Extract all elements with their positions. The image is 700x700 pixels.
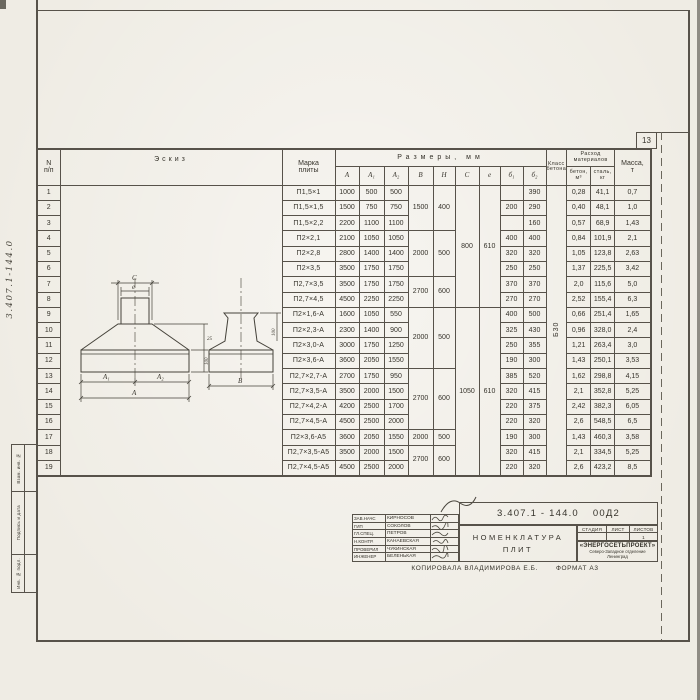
sheet-number: 13: [642, 136, 651, 145]
header-col-b1: б₁: [500, 166, 523, 185]
cell-B: 2700: [408, 445, 433, 476]
mark-cell: П2,7×2,7-А: [282, 369, 335, 384]
cell-steel: 41,1: [591, 185, 615, 200]
cell-A2: 1050: [384, 231, 408, 246]
cell-mass: 6,3: [615, 292, 651, 307]
cell-A1: 1050: [359, 307, 384, 322]
mark-cell: П2×1,6-А: [282, 307, 335, 322]
stage-header: Стадия: [578, 526, 607, 532]
stamp-label: Взам. инв. №: [16, 453, 21, 484]
row-number-cell: 7: [37, 277, 60, 292]
cell-A1: 1100: [359, 216, 384, 231]
scan-artifact: [0, 0, 6, 9]
cell-b2: 320: [523, 414, 546, 429]
cell-e: 610: [479, 307, 500, 475]
sketch-cell: С е 25 100 А₁ А₂: [60, 185, 282, 476]
cell-steel: 298,8: [591, 369, 615, 384]
cell-A2: 1500: [384, 445, 408, 460]
stamp-vzam-inv: Взам. инв. №: [11, 444, 37, 492]
signature: [431, 523, 458, 530]
header-col-e: е: [479, 166, 500, 185]
cell-b2: 430: [523, 323, 546, 338]
cell-b1: 320: [500, 246, 523, 261]
table-body: 1 С е 25 100: [37, 185, 651, 476]
cell-mass: 2,1: [615, 231, 651, 246]
cell-mass: 2,63: [615, 246, 651, 261]
cell-A2: 1550: [384, 430, 408, 445]
cell-A2: 1550: [384, 353, 408, 368]
cell-b1: 325: [500, 323, 523, 338]
signature: [431, 515, 458, 522]
sheets-value: 1: [630, 533, 657, 541]
cell-B: 2000: [408, 231, 433, 277]
cell-A1: 1050: [359, 231, 384, 246]
stamp-label: Инв. № подл.: [16, 558, 21, 589]
mark-cell: П2,7×4,5: [282, 292, 335, 307]
cell-b2: 400: [523, 231, 546, 246]
cell-steel: 250,1: [591, 353, 615, 368]
header-mass: Масса, т: [615, 149, 651, 185]
cell-b1: 250: [500, 338, 523, 353]
cell-b2: 390: [523, 185, 546, 200]
cell-C: 800: [455, 185, 479, 307]
header-col-steel: сталь, кг: [591, 166, 615, 185]
cell-H: 400: [433, 185, 455, 231]
cell-A: 2100: [335, 231, 359, 246]
plate-section-sketch: С е 25 100 А₁ А₂: [61, 186, 282, 475]
cell-b2: 520: [523, 369, 546, 384]
header-col-H: Н: [433, 166, 455, 185]
cell-A: 4200: [335, 399, 359, 414]
margin-doc-code: 3.407.1-144.0: [5, 227, 19, 331]
signature: [431, 530, 458, 537]
doc-number: 3.407.1 - 144.0: [497, 508, 579, 519]
cell-B: 1500: [408, 185, 433, 231]
cell-steel: 352,8: [591, 384, 615, 399]
cell-A2: 1750: [384, 277, 408, 292]
cell-b2: 320: [523, 246, 546, 261]
row-number-cell: 17: [37, 430, 60, 445]
row-number-cell: 18: [37, 445, 60, 460]
mark-cell: П2,7×4,5-А: [282, 414, 335, 429]
staff-row: Зав.НАЧС Кирносов: [353, 515, 458, 523]
header-col-b2: б₂: [523, 166, 546, 185]
staff-row: Инженер Беленькая: [353, 553, 458, 561]
row-number-cell: 14: [37, 384, 60, 399]
cell-A: 3500: [335, 277, 359, 292]
cell-A: 3600: [335, 353, 359, 368]
header-mark: Марка плиты: [282, 149, 335, 185]
cell-H: 500: [433, 307, 455, 368]
header-materials-group: Расход материалов: [567, 149, 615, 166]
header-sketch: Эскиз: [60, 149, 282, 185]
cell-concrete: 2,1: [567, 384, 591, 399]
cell-concrete: 0,57: [567, 216, 591, 231]
cell-A1: 2250: [359, 292, 384, 307]
cell-steel: 48,1: [591, 200, 615, 215]
cell-b1: 190: [500, 353, 523, 368]
cell-A1: 2050: [359, 353, 384, 368]
cell-A2: 2250: [384, 292, 408, 307]
cell-A: 2200: [335, 216, 359, 231]
cell-concrete: 2,52: [567, 292, 591, 307]
cell-A1: 2000: [359, 384, 384, 399]
row-number-cell: 19: [37, 460, 60, 475]
mark-cell: П2,7×4,2-А: [282, 399, 335, 414]
stamp-blank: [25, 492, 36, 554]
cell-steel: 101,9: [591, 231, 615, 246]
table-header: N п/п Эскиз Марка плиты Размеры, мм Клас…: [37, 149, 651, 185]
header-col-A1: А₁: [359, 166, 384, 185]
cell-H: 600: [433, 277, 455, 308]
header-col-B: В: [408, 166, 433, 185]
cell-concrete: 1,21: [567, 338, 591, 353]
sheets-header: Листов: [630, 526, 657, 532]
frame-top: [36, 10, 689, 11]
cell-b1: 385: [500, 369, 523, 384]
frame-right: [688, 10, 690, 641]
stamp-blank: [25, 555, 36, 592]
cell-concrete: 2,6: [567, 460, 591, 475]
mark-cell: П2,7×3,5: [282, 277, 335, 292]
cell-b1: 220: [500, 414, 523, 429]
copy-note: Копировала Владимирова Е.Б. Формат А3: [352, 565, 658, 572]
cell-mass: 5,0: [615, 277, 651, 292]
cell-mass: 4,15: [615, 369, 651, 384]
sheet-number-box: 13: [636, 132, 657, 149]
cell-H: 500: [433, 231, 455, 277]
cell-steel: 225,5: [591, 261, 615, 276]
cell-b2: 415: [523, 384, 546, 399]
mark-cell: П1,5×2,2: [282, 216, 335, 231]
cell-mass: 6,05: [615, 399, 651, 414]
stamp-label: Подпись и дата: [16, 505, 21, 540]
cell-e: 610: [479, 185, 500, 307]
mark-cell: П2×3,0-А: [282, 338, 335, 353]
mark-cell: П2×3,6-А5: [282, 430, 335, 445]
cell-concrete: 1,62: [567, 369, 591, 384]
cell-A: 1500: [335, 200, 359, 215]
mark-cell: П2×3,6-А: [282, 353, 335, 368]
staff-row: Гл.спец. Петров: [353, 530, 458, 538]
row-number-cell: 10: [37, 323, 60, 338]
table-row: 1 С е 25 100: [37, 185, 651, 200]
doc-number-box: 3.407.1 - 144.0 00Д2: [459, 502, 658, 525]
cell-A1: 2500: [359, 399, 384, 414]
cell-A: 3500: [335, 261, 359, 276]
cell-A1: 1750: [359, 338, 384, 353]
mark-cell: П1,5×1: [282, 185, 335, 200]
cell-b2: 375: [523, 399, 546, 414]
drawing-sheet: 13 3.407.1-144.0 Взам. инв. № Подпись и …: [0, 0, 700, 700]
cell-A: 3000: [335, 338, 359, 353]
cell-A2: 1400: [384, 246, 408, 261]
header-col-concrete: бетон, м³: [567, 166, 591, 185]
cell-A2: 950: [384, 369, 408, 384]
signature: [431, 538, 458, 545]
row-number-cell: 2: [37, 200, 60, 215]
cell-b1: 320: [500, 384, 523, 399]
cell-A: 3500: [335, 445, 359, 460]
cell-A: 1000: [335, 185, 359, 200]
cell-A2: 2000: [384, 414, 408, 429]
cell-b1: 200: [500, 200, 523, 215]
cell-A1: 500: [359, 185, 384, 200]
cell-A2: 900: [384, 323, 408, 338]
cell-b1: 220: [500, 399, 523, 414]
cell-A2: 1500: [384, 384, 408, 399]
cell-A: 3500: [335, 384, 359, 399]
row-number-cell: 16: [37, 414, 60, 429]
cell-b1: 270: [500, 292, 523, 307]
cell-A1: 2050: [359, 430, 384, 445]
signature: [431, 553, 458, 561]
cell-b1: 400: [500, 307, 523, 322]
cell-concrete: 2,6: [567, 414, 591, 429]
cell-b1: 400: [500, 231, 523, 246]
concrete-class-cell: Б30: [546, 185, 567, 476]
cell-mass: 3,42: [615, 261, 651, 276]
cell-concrete: 1,43: [567, 430, 591, 445]
mark-cell: П2,7×4,5-А5: [282, 460, 335, 475]
cell-A: 3600: [335, 430, 359, 445]
header-sizes-group: Размеры, мм: [335, 149, 546, 166]
header-concrete-class: Класс бетона: [546, 149, 567, 185]
cell-H: 600: [433, 445, 455, 476]
cell-b2: 300: [523, 353, 546, 368]
cell-A1: 1750: [359, 369, 384, 384]
cell-concrete: 1,43: [567, 353, 591, 368]
title-block: 3.407.1 - 144.0 00Д2 Зав.НАЧС Кирносов Г…: [352, 502, 658, 562]
sketch-label-a1: А₁: [102, 373, 110, 381]
cell-A1: 2500: [359, 414, 384, 429]
cell-A1: 750: [359, 200, 384, 215]
cell-A: 4500: [335, 460, 359, 475]
cell-concrete: 1,05: [567, 246, 591, 261]
cell-B: 2000: [408, 307, 433, 368]
mark-cell: П2,7×3,5-А5: [282, 445, 335, 460]
cell-mass: 5,25: [615, 445, 651, 460]
doc-suffix: 00Д2: [593, 508, 620, 519]
staff-row: ГИП Соколов: [353, 523, 458, 531]
cell-b1: [500, 216, 523, 231]
cell-b1: [500, 185, 523, 200]
row-number-cell: 15: [37, 399, 60, 414]
cell-A2: 500: [384, 185, 408, 200]
cell-b2: 300: [523, 430, 546, 445]
sketch-label-25: 25: [207, 337, 213, 342]
cell-A2: 1700: [384, 399, 408, 414]
sketch-label-c: С: [132, 274, 137, 282]
cell-A2: 1100: [384, 216, 408, 231]
cell-mass: 3,53: [615, 353, 651, 368]
sheet-header: Лист: [607, 526, 630, 532]
cell-concrete: 0,66: [567, 307, 591, 322]
cell-A: 4500: [335, 292, 359, 307]
cell-A: 4500: [335, 414, 359, 429]
sketch-label-100-right: 100: [272, 328, 277, 336]
cell-mass: 2,4: [615, 323, 651, 338]
format-line: Формат А3: [556, 565, 599, 572]
stamp-podpis-data: Подпись и дата: [11, 492, 37, 555]
cell-b1: 190: [500, 430, 523, 445]
cell-steel: 263,4: [591, 338, 615, 353]
cell-mass: 3,58: [615, 430, 651, 445]
header-col-C: С: [455, 166, 479, 185]
stage-value: [578, 533, 607, 541]
cell-C: 1050: [455, 307, 479, 475]
cell-steel: 328,0: [591, 323, 615, 338]
cell-b1: 250: [500, 261, 523, 276]
cell-mass: 1,0: [615, 200, 651, 215]
row-number-cell: 3: [37, 216, 60, 231]
frame-bottom: [36, 640, 690, 642]
cell-b2: 370: [523, 277, 546, 292]
cell-mass: 3,0: [615, 338, 651, 353]
staff-row: Н.контр. Канаевская: [353, 538, 458, 546]
row-number-cell: 8: [37, 292, 60, 307]
cell-mass: 6,5: [615, 414, 651, 429]
row-number-cell: 6: [37, 261, 60, 276]
cell-b2: 355: [523, 338, 546, 353]
cell-b2: 270: [523, 292, 546, 307]
cell-A1: 1750: [359, 277, 384, 292]
sketch-label-a2: А₂: [156, 373, 164, 381]
fold-line: [661, 132, 662, 640]
cell-steel: 155,4: [591, 292, 615, 307]
margin-stamp-block: Взам. инв. № Подпись и дата Инв. № подл.: [11, 444, 37, 593]
cell-concrete: 0,28: [567, 185, 591, 200]
copy-line: Копировала Владимирова Е.Б.: [411, 565, 538, 572]
cell-A: 2800: [335, 246, 359, 261]
cell-A1: 1400: [359, 246, 384, 261]
cell-A1: 1750: [359, 261, 384, 276]
cell-concrete: 2,0: [567, 277, 591, 292]
row-number-cell: 11: [37, 338, 60, 353]
cell-concrete: 2,1: [567, 445, 591, 460]
cell-concrete: 0,96: [567, 323, 591, 338]
sketch-label-b: В: [238, 377, 243, 385]
row-number-cell: 12: [37, 353, 60, 368]
cell-steel: 382,3: [591, 399, 615, 414]
cell-b2: 320: [523, 460, 546, 475]
header-col-A2: А₂: [384, 166, 408, 185]
cell-B: 2700: [408, 277, 433, 308]
mark-cell: П1,5×1,5: [282, 200, 335, 215]
cell-mass: 8,5: [615, 460, 651, 475]
cell-mass: 5,25: [615, 384, 651, 399]
cell-b1: 370: [500, 277, 523, 292]
cell-A1: 2000: [359, 445, 384, 460]
cell-A2: 2000: [384, 460, 408, 475]
cell-mass: 0,7: [615, 185, 651, 200]
doc-title: Номенклатура плит: [459, 525, 577, 562]
cell-concrete: 0,84: [567, 231, 591, 246]
cell-A2: 550: [384, 307, 408, 322]
concrete-class-value: Б30: [553, 303, 560, 355]
cell-A2: 750: [384, 200, 408, 215]
cell-concrete: 2,42: [567, 399, 591, 414]
row-number-cell: 5: [37, 246, 60, 261]
cell-mass: 1,65: [615, 307, 651, 322]
staff-table: Зав.НАЧС Кирносов ГИП Соколов Гл.спец. П…: [352, 514, 459, 562]
cell-H: 600: [433, 369, 455, 430]
cell-steel: 68,9: [591, 216, 615, 231]
cell-steel: 460,3: [591, 430, 615, 445]
cell-b1: 220: [500, 460, 523, 475]
cell-A: 1600: [335, 307, 359, 322]
cell-A1: 1400: [359, 323, 384, 338]
mark-cell: П2×3,5: [282, 261, 335, 276]
signature: [431, 546, 458, 553]
row-number-cell: 9: [37, 307, 60, 322]
mark-cell: П2,7×3,5-А: [282, 384, 335, 399]
stamp-inv-podl: Инв. № подл.: [11, 555, 37, 593]
cell-mass: 1,43: [615, 216, 651, 231]
cell-b2: 500: [523, 307, 546, 322]
cell-concrete: 1,37: [567, 261, 591, 276]
org-box: «ЭНЕРГОСЕТЬПРОЕКТ» Северо-Западное отдел…: [577, 541, 658, 562]
row-number-cell: 1: [37, 185, 60, 200]
cell-steel: 115,6: [591, 277, 615, 292]
cell-B: 2700: [408, 369, 433, 430]
header-num: N п/п: [37, 149, 60, 185]
row-number-cell: 13: [37, 369, 60, 384]
cell-H: 500: [433, 430, 455, 445]
cell-steel: 423,2: [591, 460, 615, 475]
cell-steel: 548,5: [591, 414, 615, 429]
mark-cell: П2×2,1: [282, 231, 335, 246]
cell-A2: 1250: [384, 338, 408, 353]
row-number-cell: 4: [37, 231, 60, 246]
stamp-blank: [25, 445, 36, 491]
cell-b2: 415: [523, 445, 546, 460]
cell-b2: 160: [523, 216, 546, 231]
cell-b2: 290: [523, 200, 546, 215]
header-col-A: А: [335, 166, 359, 185]
cell-A: 2300: [335, 323, 359, 338]
mark-cell: П2×2,3-А: [282, 323, 335, 338]
cell-b2: 250: [523, 261, 546, 276]
sketch-label-e: е: [132, 283, 135, 291]
org-city: Ленинград: [607, 555, 628, 560]
cell-steel: 251,4: [591, 307, 615, 322]
cell-A1: 2500: [359, 460, 384, 475]
cell-steel: 334,5: [591, 445, 615, 460]
sheet-value: [607, 533, 630, 541]
cell-b1: 320: [500, 445, 523, 460]
cell-A: 2700: [335, 369, 359, 384]
mark-cell: П2×2,8: [282, 246, 335, 261]
staff-row: Проверил Чукинская: [353, 546, 458, 554]
stage-strip: Стадия Лист Листов 1: [577, 525, 658, 541]
sketch-label-a: А: [131, 389, 137, 397]
nomenclature-table: N п/п Эскиз Марка плиты Размеры, мм Клас…: [36, 148, 652, 477]
cell-concrete: 0,40: [567, 200, 591, 215]
cell-A2: 1750: [384, 261, 408, 276]
cell-steel: 123,8: [591, 246, 615, 261]
cell-B: 2000: [408, 430, 433, 445]
